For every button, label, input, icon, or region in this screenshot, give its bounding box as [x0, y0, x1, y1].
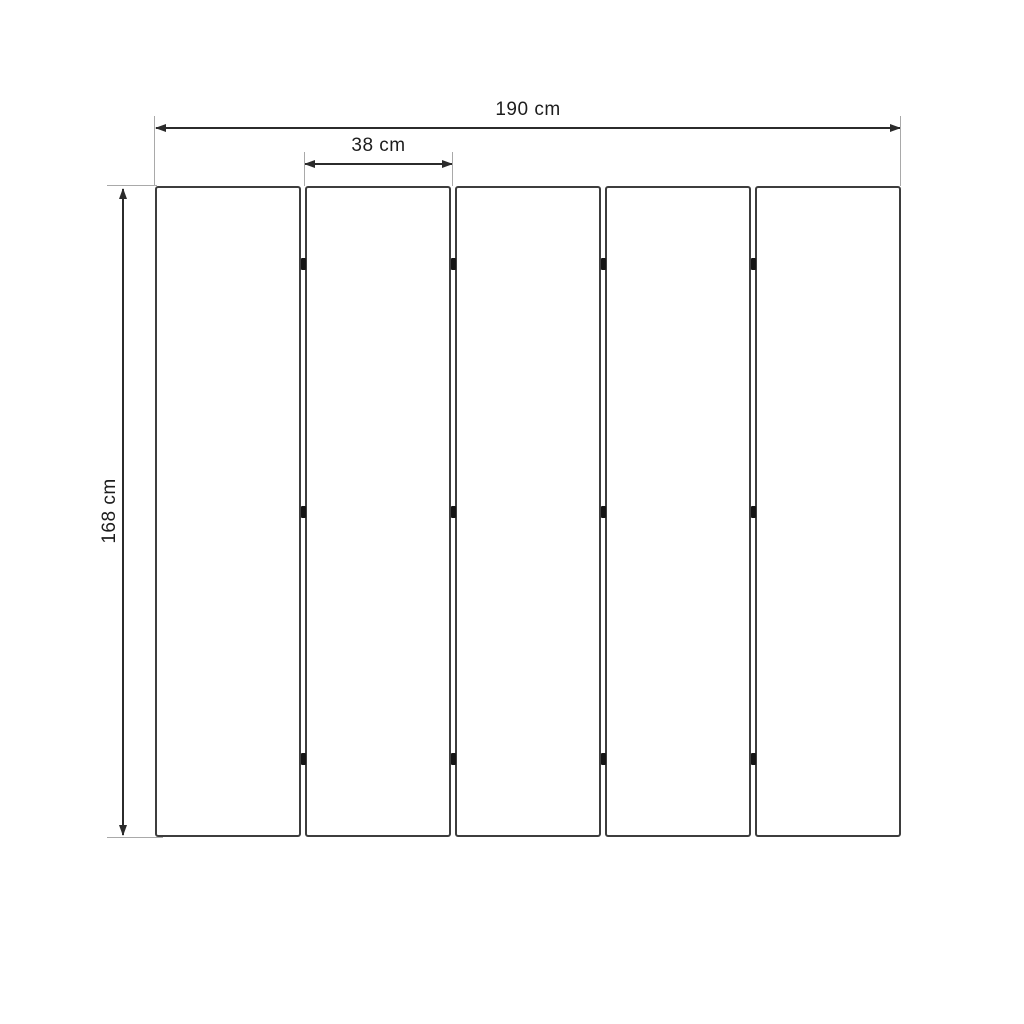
extension-line-top: [107, 185, 157, 186]
panel-width-dimension-line: [305, 163, 452, 165]
extension-line-left: [154, 116, 155, 186]
total-width-dimension-line: [156, 127, 900, 129]
panel: [755, 186, 901, 837]
panels-row: [155, 186, 901, 837]
hinge-icon: [301, 506, 306, 518]
hinge-icon: [751, 753, 756, 765]
height-dimension-line: [122, 189, 124, 835]
hinge-icon: [451, 258, 456, 270]
panel: [455, 186, 601, 837]
arrow-left-icon: [155, 124, 166, 132]
arrow-down-icon: [119, 825, 127, 836]
hinge-icon: [601, 506, 606, 518]
height-label: 168 cm: [99, 471, 121, 551]
extension-line-panel-right: [452, 152, 453, 186]
hinge-icon: [751, 258, 756, 270]
panel-width-label: 38 cm: [305, 135, 452, 157]
hinge-icon: [301, 258, 306, 270]
hinge-icon: [451, 753, 456, 765]
panel: [605, 186, 751, 837]
arrow-up-icon: [119, 188, 127, 199]
panel: [155, 186, 301, 837]
panel: [305, 186, 451, 837]
hinge-icon: [601, 258, 606, 270]
hinge-icon: [751, 506, 756, 518]
extension-line-panel-left: [304, 152, 305, 186]
hinge-icon: [451, 506, 456, 518]
arrow-left-icon: [304, 160, 315, 168]
total-width-label: 190 cm: [155, 99, 901, 121]
panel-diagram: 190 cm 38 cm 168 cm: [0, 0, 1024, 1024]
extension-line-right: [900, 116, 901, 186]
extension-line-bottom: [107, 837, 163, 838]
hinge-icon: [301, 753, 306, 765]
hinge-icon: [601, 753, 606, 765]
